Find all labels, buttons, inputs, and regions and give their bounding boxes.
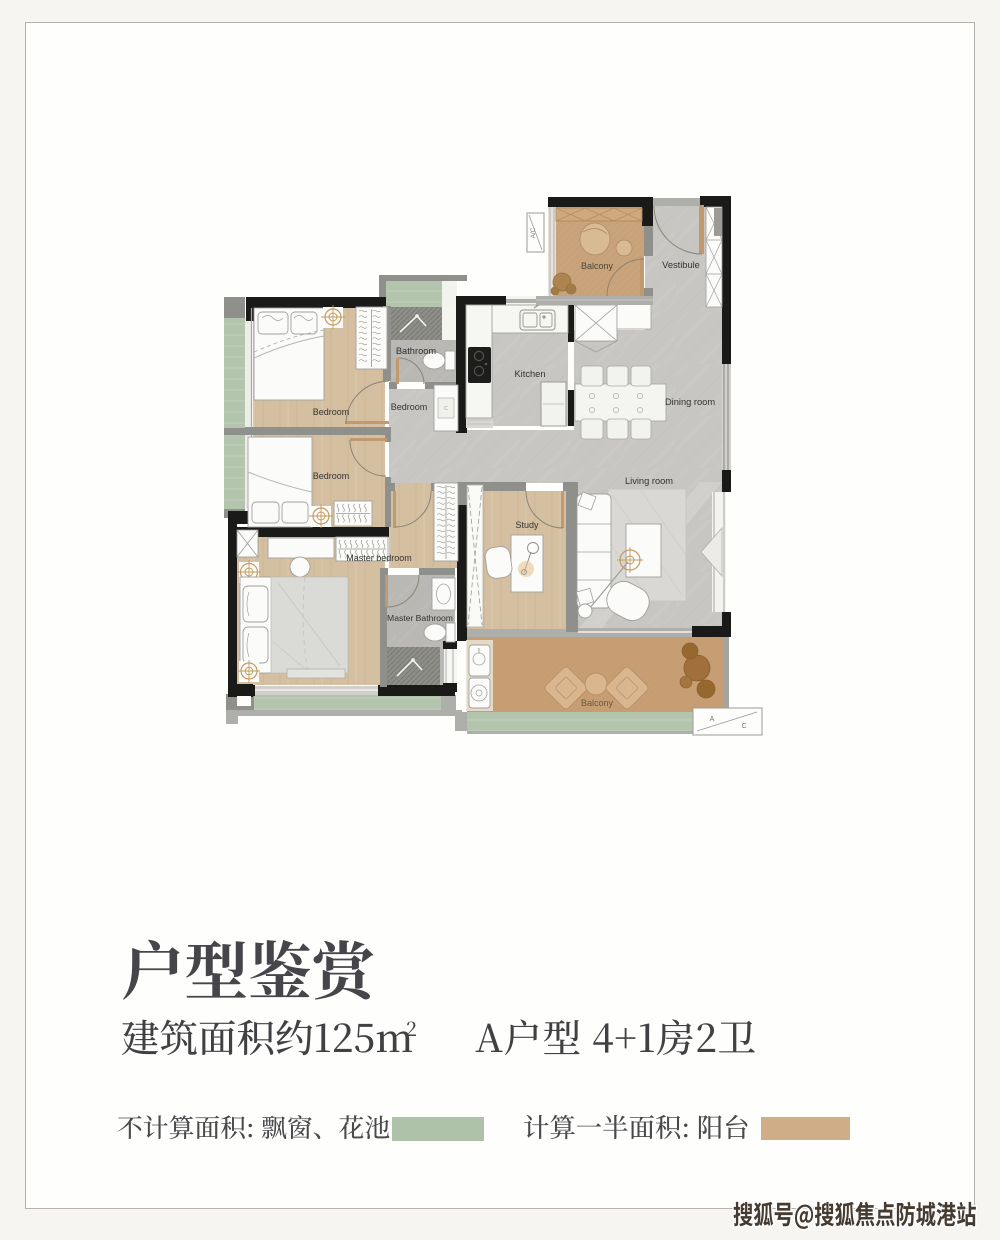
svg-text:Study: Study	[515, 520, 539, 530]
svg-text:Vestibule: Vestibule	[662, 260, 700, 270]
svg-text:C: C	[444, 406, 448, 412]
svg-text:Bedroom: Bedroom	[313, 407, 350, 417]
svg-text:Balcony: Balcony	[581, 698, 614, 708]
svg-text:Living room: Living room	[625, 476, 673, 486]
svg-text:C: C	[741, 723, 746, 730]
svg-text:Dining room: Dining room	[665, 397, 715, 407]
svg-text:Bedroom: Bedroom	[313, 471, 350, 481]
svg-text:A/C: A/C	[530, 227, 537, 238]
svg-text:Balcony: Balcony	[581, 261, 614, 271]
svg-text:Kitchen: Kitchen	[514, 369, 545, 379]
svg-text:A: A	[710, 716, 715, 723]
svg-text:Bedroom: Bedroom	[391, 402, 428, 412]
svg-text:Master Bathroom: Master Bathroom	[387, 613, 453, 623]
svg-text:Master bedroom: Master bedroom	[346, 553, 412, 563]
svg-text:Bathroom: Bathroom	[396, 346, 437, 356]
